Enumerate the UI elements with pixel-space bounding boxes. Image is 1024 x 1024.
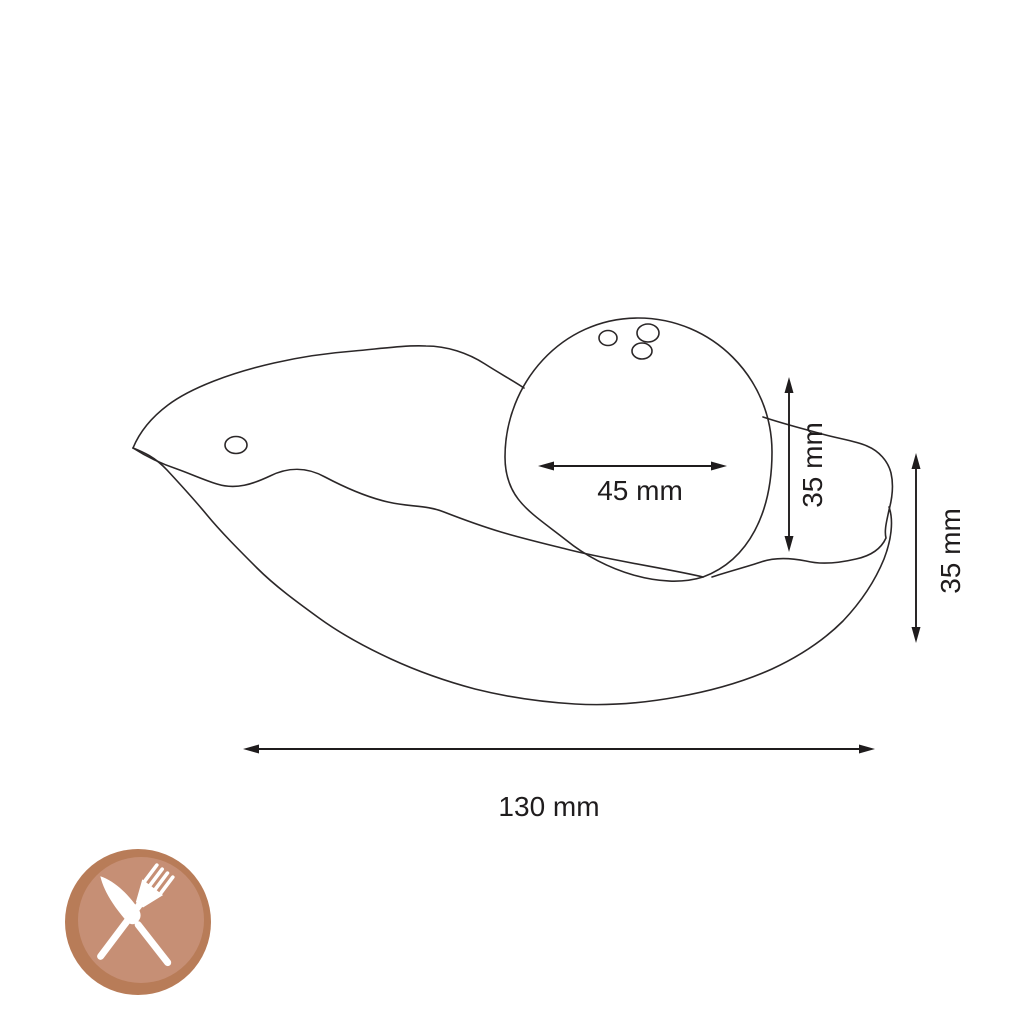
ball-width-label: 45 mm: [597, 475, 683, 506]
arrowhead-left-icon: [538, 462, 554, 471]
dimension-shell-height: 35 mm: [912, 453, 967, 643]
dimension-ball-width: 45 mm: [538, 462, 727, 507]
arrowhead-up-icon: [785, 377, 794, 393]
ball-hole-3: [632, 343, 652, 359]
shaker-ball-outline: [505, 318, 772, 581]
ball-hole-1: [599, 331, 617, 346]
arrowhead-right-icon: [711, 462, 727, 471]
dimension-ball-height: 35 mm: [785, 377, 829, 552]
diagram-canvas: 45 mm 35 mm 35 mm 130 mm: [0, 0, 1024, 1024]
arrowhead-down-icon: [785, 536, 794, 552]
arrowhead-right-icon: [859, 745, 875, 754]
shell-width-label: 130 mm: [498, 791, 599, 822]
badge-face: [78, 857, 204, 983]
oyster-shell-outline: [133, 346, 892, 705]
arrowhead-left-icon: [243, 745, 259, 754]
shell-inner-rim: [133, 448, 703, 577]
arrowhead-down-icon: [912, 627, 921, 643]
shell-outer-bowl: [133, 448, 891, 705]
dimension-shell-width: 130 mm: [243, 745, 875, 823]
brand-badge: [65, 849, 211, 995]
ball-height-label: 35 mm: [797, 422, 828, 508]
arrowhead-up-icon: [912, 453, 921, 469]
product-dimension-diagram: 45 mm 35 mm 35 mm 130 mm: [0, 0, 1024, 1024]
shell-hole: [225, 437, 247, 454]
shell-height-label: 35 mm: [935, 508, 966, 594]
shell-top-edge: [133, 346, 524, 448]
ball-outline: [505, 318, 772, 581]
ball-hole-2: [637, 324, 659, 342]
